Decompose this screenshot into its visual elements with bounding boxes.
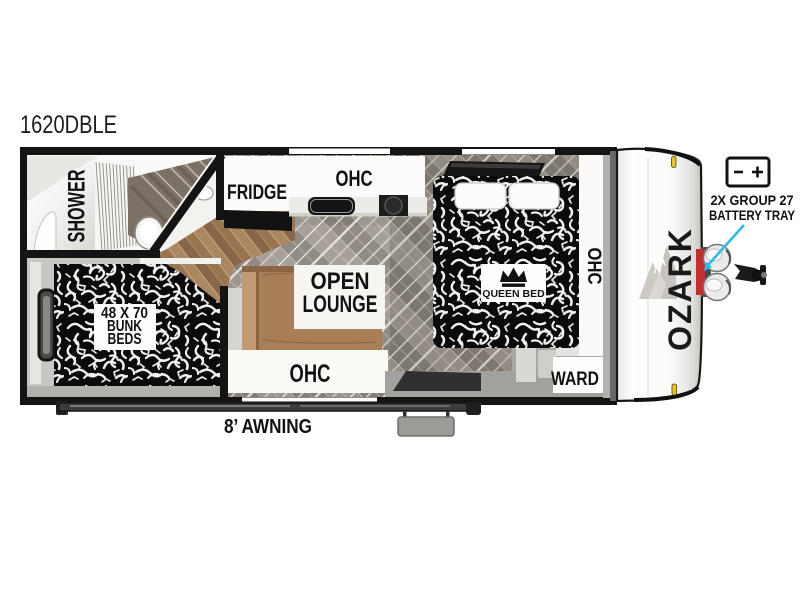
svg-text:OHC: OHC [290,360,331,388]
svg-text:OZARK: OZARK [662,227,698,351]
svg-text:QUEEN BED: QUEEN BED [482,288,545,300]
svg-text:8’ AWNING: 8’ AWNING [224,416,312,438]
svg-text:1620DBLE: 1620DBLE [20,111,117,139]
svg-text:LOUNGE: LOUNGE [303,291,378,318]
svg-text:FRIDGE: FRIDGE [227,181,287,204]
svg-text:SHOWER: SHOWER [64,170,91,243]
svg-text:2X GROUP 27: 2X GROUP 27 [711,192,794,208]
svg-text:BATTERY TRAY: BATTERY TRAY [709,207,796,223]
svg-text:OHC: OHC [336,166,373,191]
svg-text:BEDS: BEDS [108,331,142,348]
svg-text:OHC: OHC [583,248,604,285]
svg-text:WARD: WARD [551,369,599,390]
